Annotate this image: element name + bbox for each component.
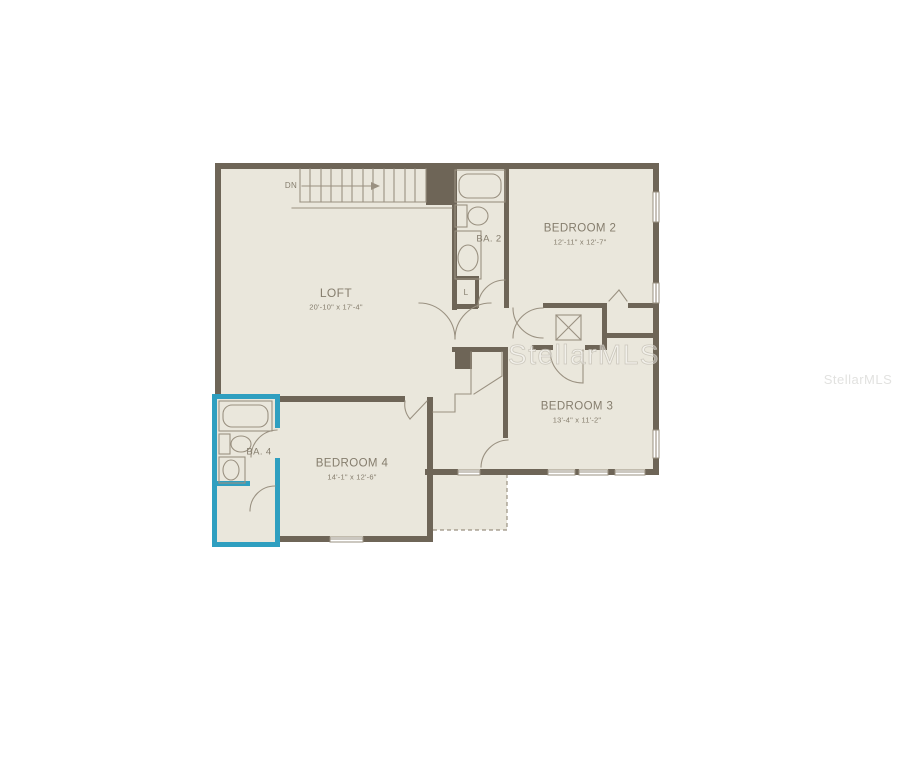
room-label-linen-closet: L xyxy=(464,289,469,297)
room-label-bedroom-2: BEDROOM 2 xyxy=(544,223,617,235)
room-dims-loft: 20'-10" x 17'-4" xyxy=(309,303,363,311)
room-dims-bedroom-4: 14'-1" x 12'-6" xyxy=(327,473,376,481)
stairs-dn-label: DN xyxy=(285,182,297,190)
room-label-loft: LOFT xyxy=(320,287,352,299)
room-dims-bedroom-2: 12'-11" x 12'-7" xyxy=(554,238,607,246)
room-label-bath-2: BA. 2 xyxy=(476,234,501,244)
stairwell-wall-block xyxy=(455,352,472,369)
stair-landing-wall-block xyxy=(426,165,452,205)
room-label-bedroom-4: BEDROOM 4 xyxy=(316,458,389,470)
floor-plan-drawing: StellarMLS StellarMLS xyxy=(0,0,898,768)
room-label-bath-4: BA. 4 xyxy=(246,447,271,457)
watermark-right: StellarMLS xyxy=(824,372,893,387)
room-dims-bedroom-3: 13'-4" x 11'-2" xyxy=(553,416,602,424)
watermark-center: StellarMLS xyxy=(508,339,660,370)
floor-plan-page: StellarMLS StellarMLS DN LOFT 20'-10" x … xyxy=(0,0,898,768)
room-label-bedroom-3: BEDROOM 3 xyxy=(541,401,614,413)
